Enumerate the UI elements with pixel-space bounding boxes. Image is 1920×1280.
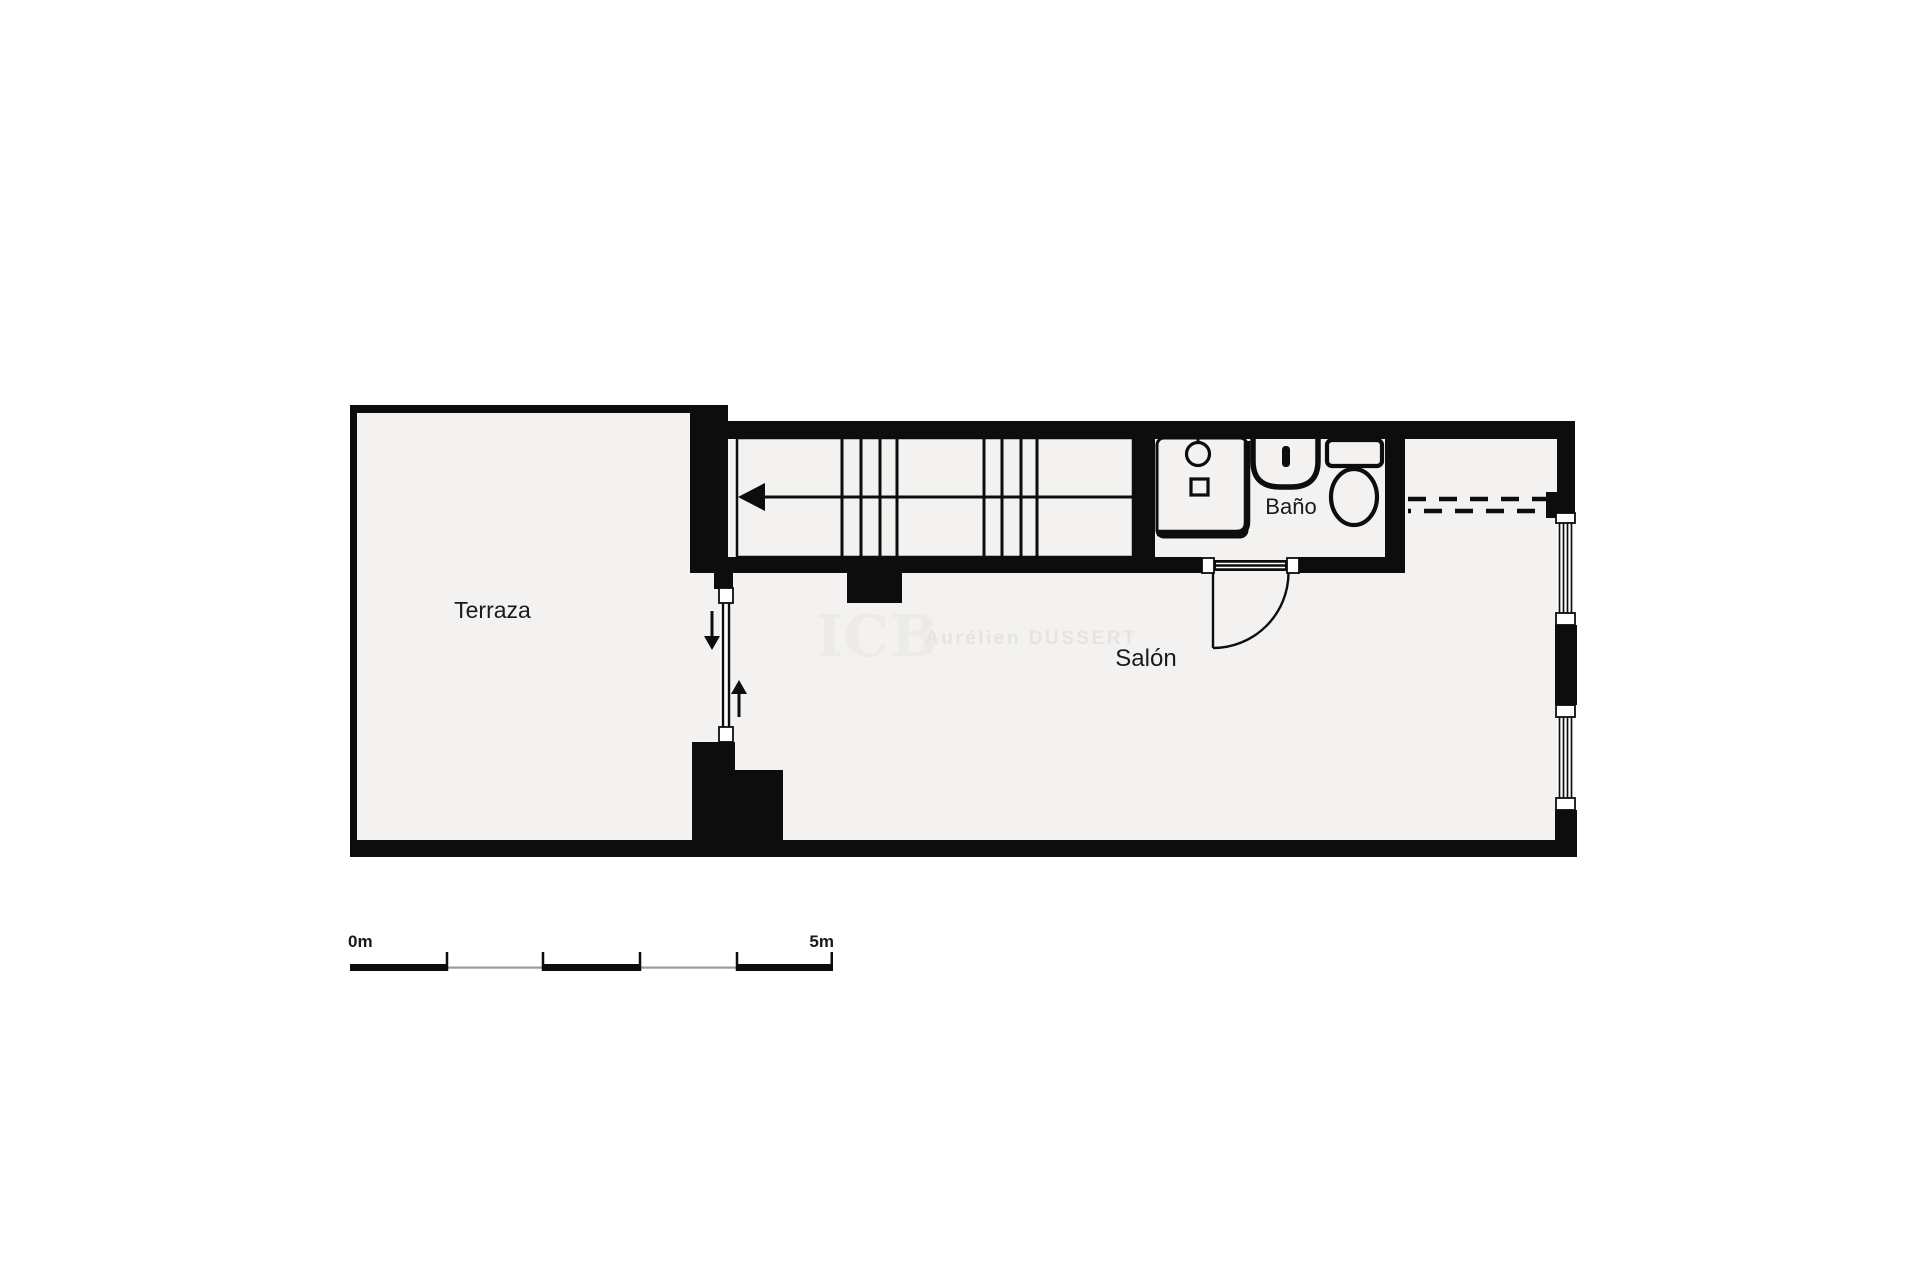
terraza-top-wall xyxy=(350,405,690,413)
window-lower-step xyxy=(735,770,783,840)
window-sill xyxy=(1556,613,1575,625)
understair-wall-band xyxy=(728,557,1202,573)
scale-tick xyxy=(446,952,449,971)
window-sill xyxy=(1556,705,1575,717)
window-sill-top xyxy=(719,588,733,603)
toilet-tank xyxy=(1327,440,1382,466)
terraza-floor xyxy=(357,413,720,840)
floor-areas xyxy=(357,413,1557,840)
tap-icon xyxy=(1282,446,1290,467)
shower-head xyxy=(1187,443,1210,466)
window-sill xyxy=(1556,798,1575,810)
right-wall-corner xyxy=(1555,810,1577,857)
bottom-wall xyxy=(350,840,1577,857)
room-label-bano: Baño xyxy=(1241,494,1341,520)
understair-block xyxy=(847,557,902,603)
door-post-left xyxy=(1202,558,1214,573)
pillar-stub xyxy=(714,573,733,589)
scale-tick xyxy=(639,952,642,971)
window-sill xyxy=(1556,513,1575,523)
watermark-agent-name: Aurélien DUSSERT xyxy=(925,628,1137,650)
room-label-terraza: Terraza xyxy=(420,597,565,624)
scale-bar xyxy=(350,952,833,971)
scale-segment xyxy=(350,964,447,971)
right-wall-pier xyxy=(1555,625,1577,705)
bathroom-right-wall xyxy=(1385,421,1405,573)
scale-tick xyxy=(831,952,834,971)
watermark-logo: ICB xyxy=(816,608,939,665)
scale-start-label: 0m xyxy=(348,932,373,952)
window-sill-bottom xyxy=(719,727,733,742)
scale-tick xyxy=(542,952,545,971)
terraza-left-wall xyxy=(350,405,357,857)
floor-plan: Terraza Salón Baño ICB Aurélien DUSSERT … xyxy=(0,0,1920,1280)
door-leaf xyxy=(1214,560,1287,571)
scale-tick xyxy=(736,952,739,971)
scale-end-label: 5m xyxy=(804,932,834,952)
scale-segment xyxy=(737,964,833,971)
stair-bathroom-wall xyxy=(1133,421,1155,573)
scale-segment xyxy=(447,967,543,969)
scale-segment xyxy=(543,964,640,971)
window-lower-block xyxy=(692,742,735,852)
door-post-right xyxy=(1287,558,1299,573)
scale-segment xyxy=(640,967,737,969)
